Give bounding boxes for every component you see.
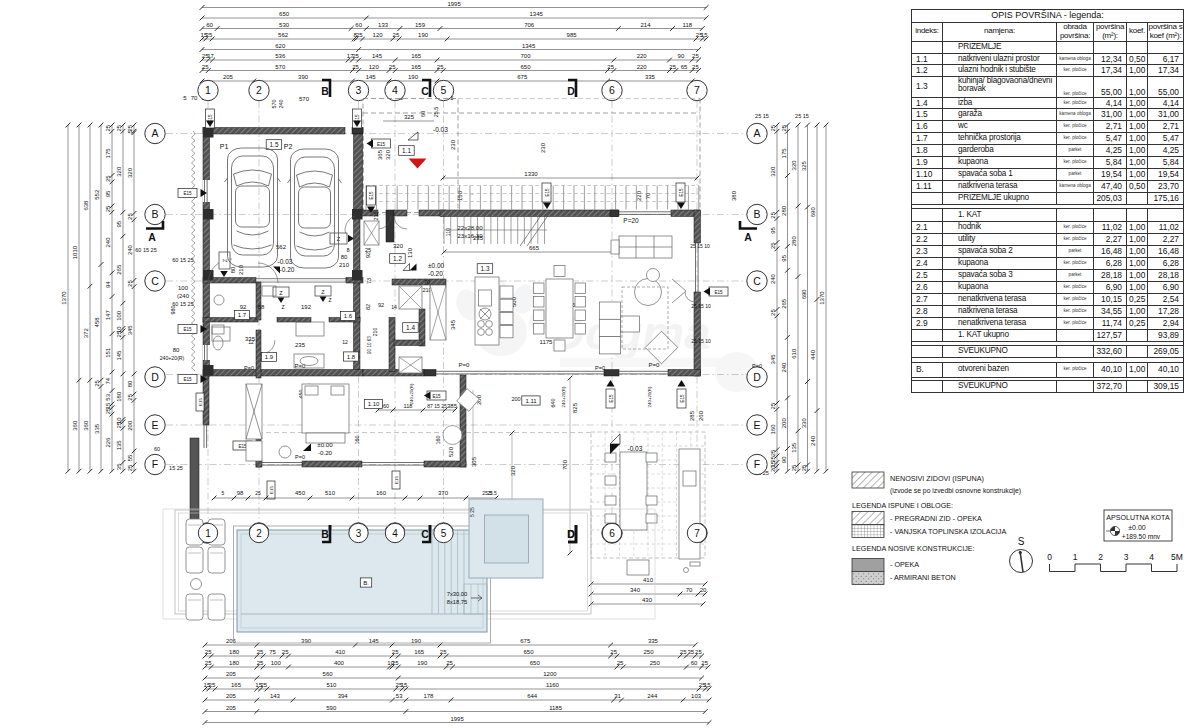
svg-text:25: 25 [352, 53, 359, 59]
svg-text:370: 370 [438, 490, 449, 496]
svg-text:1.9: 1.9 [265, 354, 274, 360]
svg-text:25.5: 25.5 [482, 490, 492, 496]
svg-text:15: 15 [401, 682, 408, 688]
svg-text:25: 25 [127, 393, 133, 400]
svg-text:345: 345 [770, 354, 776, 365]
svg-text:25: 25 [127, 213, 133, 220]
svg-text:80: 80 [127, 380, 133, 387]
svg-text:1160: 1160 [546, 682, 560, 688]
svg-text:205: 205 [226, 693, 237, 699]
svg-text:- VANJSKA TOPLINSKA IZOLACIJA: - VANJSKA TOPLINSKA IZOLACIJA [890, 527, 1006, 536]
svg-text:1.8: 1.8 [347, 354, 356, 360]
svg-text:320: 320 [770, 166, 776, 177]
svg-text:Z: Z [328, 297, 331, 303]
svg-text:92: 92 [240, 304, 247, 310]
svg-text:-0.03: -0.03 [433, 126, 448, 133]
svg-text:20: 20 [770, 465, 776, 472]
svg-text:35: 35 [116, 463, 122, 470]
svg-text:220: 220 [636, 190, 642, 201]
svg-text:320: 320 [393, 243, 404, 249]
svg-text:90 10 63: 90 10 63 [367, 336, 372, 354]
svg-text:530: 530 [279, 22, 290, 28]
svg-text:92: 92 [378, 302, 384, 308]
svg-text:980: 980 [170, 305, 176, 314]
svg-text:25 15 10: 25 15 10 [690, 243, 710, 249]
svg-text:190: 190 [411, 638, 422, 644]
svg-text:P=0: P=0 [244, 365, 254, 371]
svg-text:8x18,75: 8x18,75 [447, 599, 468, 605]
svg-text:1.11: 1.11 [525, 398, 537, 404]
svg-text:244: 244 [647, 693, 658, 699]
svg-text:(izvode se po izvedbi osnovne: (izvode se po izvedbi osnovne konstrukci… [890, 487, 1021, 495]
svg-text:70: 70 [686, 587, 693, 593]
svg-text:165: 165 [411, 64, 422, 70]
svg-text:60: 60 [154, 446, 160, 452]
svg-text:235: 235 [473, 235, 484, 241]
svg-text:365: 365 [377, 149, 383, 160]
svg-text:190: 190 [408, 74, 419, 80]
svg-text:P=20: P=20 [623, 217, 639, 224]
svg-text:4: 4 [392, 528, 398, 539]
svg-text:133: 133 [378, 22, 389, 28]
svg-text:25: 25 [440, 649, 447, 655]
svg-text:205: 205 [226, 671, 237, 677]
svg-text:510: 510 [326, 682, 337, 688]
svg-text:25 15: 25 15 [795, 113, 809, 119]
svg-text:98: 98 [237, 490, 244, 496]
svg-text:175: 175 [781, 148, 787, 159]
svg-text:410: 410 [335, 649, 346, 655]
svg-text:90: 90 [678, 53, 685, 59]
svg-text:25: 25 [127, 464, 133, 471]
svg-text:P=0: P=0 [752, 363, 762, 369]
svg-text:335: 335 [245, 336, 256, 342]
svg-text:240: 240 [770, 273, 776, 284]
svg-text:320: 320 [791, 160, 797, 171]
svg-text:210: 210 [339, 262, 350, 268]
svg-text:APSOLUTNA KOTA: APSOLUTNA KOTA [1106, 514, 1170, 522]
svg-text:1.2: 1.2 [393, 255, 402, 262]
svg-text:74: 74 [105, 377, 111, 384]
svg-text:3: 3 [356, 528, 362, 539]
svg-text:5: 5 [441, 84, 447, 96]
svg-text:145: 145 [366, 74, 377, 80]
svg-text:E15: E15 [183, 377, 192, 382]
svg-text:1345: 1345 [530, 11, 544, 17]
svg-text:700: 700 [562, 459, 568, 470]
svg-text:372: 372 [83, 328, 89, 339]
svg-text:70: 70 [645, 192, 651, 199]
svg-text:A: A [753, 127, 760, 139]
svg-text:±0.00: ±0.00 [1128, 524, 1146, 531]
svg-text:340: 340 [630, 587, 641, 593]
svg-text:14: 14 [391, 304, 397, 310]
svg-text:1995: 1995 [450, 716, 464, 722]
svg-text:25: 25 [437, 64, 444, 70]
svg-text:15: 15 [701, 32, 708, 38]
svg-text:103: 103 [691, 693, 702, 699]
svg-text:335: 335 [645, 74, 656, 80]
svg-text:25: 25 [205, 660, 212, 666]
svg-text:25: 25 [392, 660, 399, 666]
svg-text:305: 305 [471, 456, 477, 467]
svg-text:25: 25 [446, 660, 453, 666]
svg-text:190: 190 [418, 32, 429, 38]
svg-text:4: 4 [1149, 552, 1154, 562]
svg-text:53: 53 [396, 693, 403, 699]
svg-text:25: 25 [282, 649, 289, 655]
svg-text:E15: E15 [679, 188, 684, 197]
svg-text:75: 75 [269, 649, 276, 655]
svg-text:25: 25 [94, 379, 100, 386]
svg-text:A: A [148, 231, 156, 243]
svg-text:±0.00: ±0.00 [428, 262, 445, 269]
svg-text:151: 151 [105, 347, 111, 358]
svg-text:394: 394 [338, 693, 349, 699]
svg-text:143: 143 [270, 693, 281, 699]
svg-text:25 15 10: 25 15 10 [691, 338, 711, 344]
svg-text:235: 235 [295, 342, 306, 348]
svg-text:E15: E15 [714, 290, 723, 295]
svg-text:145: 145 [116, 350, 122, 361]
svg-text:25: 25 [116, 421, 122, 428]
svg-text:65: 65 [681, 64, 688, 70]
svg-text:25: 25 [389, 64, 396, 70]
svg-text:LEGENDA NOSIVE KONSTRUKCIJE:: LEGENDA NOSIVE KONSTRUKCIJE: [852, 544, 975, 553]
svg-text:(240: (240 [177, 293, 190, 299]
svg-text:250: 250 [643, 649, 654, 655]
svg-text:5M: 5M [1171, 552, 1183, 562]
svg-text:147: 147 [105, 310, 111, 321]
svg-text:A: A [744, 231, 752, 243]
svg-text:562: 562 [278, 32, 289, 38]
svg-text:570: 570 [271, 99, 277, 108]
svg-text:280: 280 [791, 236, 797, 247]
svg-text:82: 82 [365, 304, 371, 310]
svg-text:440: 440 [810, 349, 816, 360]
svg-text:220: 220 [637, 53, 648, 59]
svg-text:D: D [151, 371, 159, 383]
svg-text:1995: 1995 [447, 1, 461, 7]
svg-text:1: 1 [205, 84, 211, 96]
svg-text:P2: P2 [284, 143, 293, 150]
svg-text:E15: E15 [432, 394, 441, 399]
svg-text:P=0: P=0 [295, 454, 305, 460]
svg-text:5: 5 [441, 528, 447, 539]
svg-text:205: 205 [226, 638, 237, 644]
svg-text:100: 100 [271, 660, 282, 666]
svg-text:240+20(R): 240+20(R) [409, 383, 414, 404]
svg-text:D: D [567, 528, 575, 540]
svg-text:5 25: 5 25 [469, 507, 475, 517]
svg-text:25: 25 [770, 211, 776, 218]
svg-text:165: 165 [411, 53, 422, 59]
svg-text:285: 285 [689, 410, 695, 421]
svg-text:240: 240 [105, 237, 111, 248]
svg-text:590: 590 [326, 705, 337, 711]
svg-text:1.1: 1.1 [402, 147, 411, 154]
svg-text:240+20(R): 240+20(R) [160, 355, 185, 361]
svg-text:2: 2 [256, 84, 262, 96]
svg-text:200: 200 [511, 396, 520, 402]
svg-text:320: 320 [385, 149, 391, 160]
svg-text:335: 335 [94, 423, 100, 434]
svg-text:-0.20: -0.20 [428, 270, 443, 277]
svg-text:E15: E15 [609, 394, 614, 403]
svg-text:25: 25 [680, 649, 687, 655]
svg-text:C: C [421, 85, 429, 97]
svg-text:35: 35 [687, 649, 694, 655]
svg-text:25: 25 [206, 32, 213, 38]
svg-text:4: 4 [392, 84, 398, 96]
svg-text:430: 430 [642, 597, 653, 603]
svg-text:220: 220 [637, 64, 648, 70]
svg-text:- PREGRADNI ZID - OPEKA: - PREGRADNI ZID - OPEKA [890, 514, 982, 523]
svg-text:985: 985 [567, 32, 578, 38]
svg-text:25: 25 [257, 649, 264, 655]
svg-text:60: 60 [355, 22, 362, 28]
svg-text:360: 360 [83, 420, 89, 431]
svg-text:325: 325 [404, 114, 415, 120]
svg-text:25: 25 [701, 660, 708, 666]
svg-text:B: B [321, 85, 329, 97]
svg-text:25: 25 [392, 649, 399, 655]
svg-text:25: 25 [116, 124, 122, 131]
svg-text:25: 25 [356, 32, 363, 38]
svg-text:22x28,00: 22x28,00 [457, 224, 483, 231]
svg-text:205: 205 [226, 705, 237, 711]
svg-text:240: 240 [781, 362, 787, 373]
svg-text:25.5: 25.5 [433, 107, 439, 118]
svg-text:536: 536 [275, 53, 286, 59]
svg-text:NENOSIVI ZIDOVI (ISPUNA): NENOSIVI ZIDOVI (ISPUNA) [890, 474, 984, 483]
svg-text:1185: 1185 [549, 705, 563, 711]
svg-text:87 15 25: 87 15 25 [427, 403, 447, 409]
svg-text:345: 345 [450, 319, 456, 330]
svg-text:25: 25 [105, 205, 111, 212]
svg-text:92: 92 [365, 252, 371, 258]
svg-text:145: 145 [372, 53, 383, 59]
svg-text:60: 60 [206, 22, 213, 28]
svg-text:25: 25 [116, 330, 122, 337]
svg-text:25: 25 [607, 64, 614, 70]
svg-text:25: 25 [205, 649, 212, 655]
svg-text:205: 205 [223, 74, 234, 80]
svg-text:1: 1 [1073, 552, 1078, 562]
svg-text:380: 380 [731, 190, 737, 201]
svg-text:1175: 1175 [540, 339, 554, 345]
svg-text:25: 25 [617, 660, 624, 666]
svg-text:E15: E15 [198, 398, 203, 406]
svg-text:25: 25 [260, 682, 267, 688]
svg-text:60 15 25: 60 15 25 [172, 257, 193, 263]
svg-text:25: 25 [610, 649, 617, 655]
svg-text:E15: E15 [369, 191, 374, 200]
svg-text:7: 7 [694, 528, 700, 539]
svg-text:3: 3 [356, 84, 362, 96]
svg-text:1370: 1370 [819, 291, 825, 305]
svg-text:P=0: P=0 [459, 362, 471, 368]
svg-text:690: 690 [810, 207, 816, 218]
svg-text:280: 280 [781, 205, 787, 216]
svg-text:165: 165 [231, 682, 242, 688]
svg-text:320: 320 [116, 166, 122, 177]
svg-text:B: B [753, 208, 760, 220]
svg-text:25: 25 [255, 490, 261, 496]
svg-text:25: 25 [352, 64, 359, 70]
svg-text:135: 135 [116, 440, 122, 451]
svg-text:25: 25 [105, 407, 111, 414]
svg-text:E15: E15 [183, 191, 192, 196]
svg-text:E15: E15 [183, 327, 192, 332]
svg-text:250: 250 [650, 660, 661, 666]
svg-text:25: 25 [209, 682, 216, 688]
svg-text:- ARMIRANI BETON: - ARMIRANI BETON [890, 573, 956, 582]
svg-text:100: 100 [178, 285, 189, 291]
svg-text:150: 150 [457, 190, 463, 201]
svg-text:F: F [754, 458, 760, 470]
svg-text:B.: B. [363, 580, 369, 586]
svg-text:240+20(R): 240+20(R) [561, 386, 566, 407]
svg-text:240: 240 [278, 99, 284, 108]
svg-text:+189.50 mnv: +189.50 mnv [1122, 533, 1161, 540]
svg-text:25: 25 [105, 124, 111, 131]
svg-text:1370: 1370 [61, 291, 67, 305]
svg-text:118: 118 [683, 22, 693, 28]
svg-text:7x30,00: 7x30,00 [447, 591, 468, 597]
svg-text:7: 7 [694, 84, 700, 96]
svg-text:E15: E15 [545, 188, 550, 197]
svg-text:A: A [151, 127, 158, 139]
svg-text:E15: E15 [680, 394, 685, 403]
svg-text:145: 145 [369, 638, 380, 644]
svg-text:214: 214 [640, 22, 651, 28]
svg-text:25: 25 [770, 449, 776, 456]
svg-text:665: 665 [529, 245, 540, 251]
svg-text:25: 25 [393, 32, 400, 38]
svg-text:95: 95 [770, 227, 776, 234]
svg-text:D: D [567, 85, 575, 97]
svg-text:-0.20: -0.20 [318, 449, 333, 456]
svg-text:C: C [421, 528, 429, 540]
svg-text:330: 330 [801, 418, 807, 429]
svg-text:73: 73 [366, 278, 372, 284]
svg-text:25: 25 [105, 175, 111, 182]
svg-text:620: 620 [275, 43, 286, 49]
svg-text:410: 410 [643, 577, 654, 583]
svg-text:650: 650 [523, 649, 534, 655]
svg-text:159: 159 [415, 22, 426, 28]
svg-text:1.5: 1.5 [270, 141, 279, 148]
svg-text:240: 240 [810, 435, 816, 446]
svg-text:12: 12 [342, 339, 348, 345]
svg-text:2: 2 [256, 528, 262, 539]
svg-text:25: 25 [770, 402, 776, 409]
svg-text:360: 360 [72, 420, 78, 431]
svg-text:160: 160 [435, 435, 441, 444]
svg-text:640: 640 [550, 398, 556, 407]
svg-text:240: 240 [127, 244, 133, 255]
svg-text:E: E [151, 419, 158, 431]
svg-text:-0.20: -0.20 [280, 266, 295, 273]
svg-text:E15: E15 [394, 476, 399, 484]
svg-text:D: D [753, 371, 761, 383]
svg-text:LEGENDA ISPUNE I OBLOGE:: LEGENDA ISPUNE I OBLOGE: [852, 501, 953, 510]
svg-text:180: 180 [229, 649, 240, 655]
svg-text:160: 160 [770, 424, 776, 435]
svg-text:120: 120 [369, 64, 380, 70]
svg-text:320: 320 [127, 167, 133, 178]
svg-text:390: 390 [301, 638, 312, 644]
svg-text:95: 95 [781, 254, 787, 261]
svg-text:25: 25 [770, 124, 776, 131]
svg-text:325: 325 [801, 160, 807, 171]
svg-text:180: 180 [116, 391, 122, 402]
svg-text:P1: P1 [220, 143, 229, 150]
svg-text:15: 15 [704, 682, 711, 688]
svg-text:5: 5 [222, 490, 225, 496]
svg-text:E15: E15 [269, 486, 274, 494]
svg-text:400: 400 [334, 660, 345, 666]
svg-text:70: 70 [191, 95, 198, 101]
svg-text:610: 610 [791, 348, 797, 359]
svg-text:215: 215 [373, 211, 379, 220]
svg-text:3: 3 [1124, 552, 1129, 562]
svg-text:80: 80 [173, 347, 180, 353]
svg-text:20: 20 [700, 587, 707, 593]
svg-text:88: 88 [258, 304, 265, 310]
svg-text:25: 25 [669, 64, 676, 70]
svg-text:560: 560 [323, 671, 334, 677]
svg-text:B: B [321, 528, 329, 540]
svg-text:Z: Z [281, 304, 284, 310]
svg-text:1.7: 1.7 [238, 312, 247, 318]
svg-text:25: 25 [770, 309, 776, 316]
svg-text:P=0: P=0 [649, 362, 661, 368]
svg-text:450: 450 [295, 490, 306, 496]
svg-text:0: 0 [1047, 552, 1052, 562]
svg-text:80: 80 [230, 266, 236, 273]
svg-text:825: 825 [572, 402, 578, 413]
svg-text:335: 335 [648, 638, 659, 644]
svg-text:650: 650 [530, 660, 541, 666]
svg-text:260: 260 [698, 410, 704, 421]
svg-text:25: 25 [695, 649, 702, 655]
svg-text:675: 675 [517, 74, 528, 80]
svg-text:25: 25 [127, 280, 133, 287]
svg-text:178: 178 [423, 693, 434, 699]
svg-text:175: 175 [105, 148, 111, 159]
svg-text:1345: 1345 [522, 43, 536, 49]
svg-text:95: 95 [105, 190, 111, 197]
svg-text:31: 31 [614, 693, 621, 699]
svg-text:1: 1 [205, 528, 211, 539]
svg-text:15 25: 15 25 [169, 465, 183, 471]
svg-text:B: B [151, 208, 158, 220]
svg-text:60: 60 [420, 110, 426, 117]
svg-text:110: 110 [445, 228, 451, 237]
svg-text:385: 385 [447, 403, 458, 409]
svg-text:510: 510 [325, 490, 336, 496]
svg-text:25: 25 [801, 464, 807, 471]
svg-text:1330: 1330 [524, 171, 538, 177]
svg-text:25: 25 [257, 660, 264, 666]
svg-text:1200: 1200 [543, 671, 557, 677]
svg-text:80: 80 [341, 254, 348, 260]
svg-text:458: 458 [94, 317, 100, 328]
svg-text:570: 570 [299, 96, 310, 102]
svg-text:25 15 10: 25 15 10 [691, 303, 711, 309]
